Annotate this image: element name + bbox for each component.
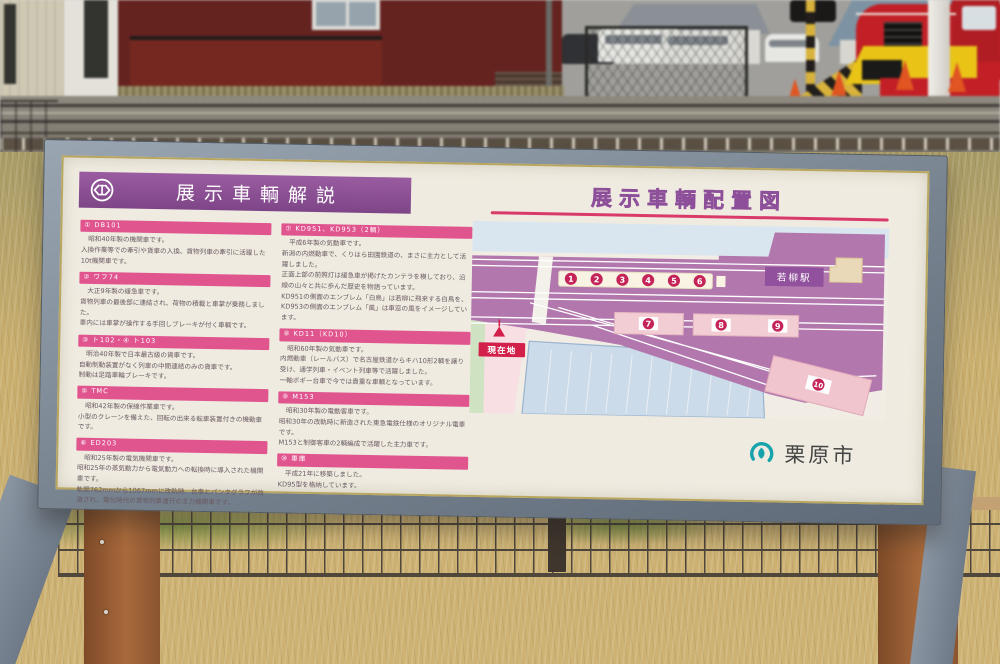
traffic-cone [948,62,966,92]
svg-text:7: 7 [645,319,651,329]
traffic-cone [831,70,846,96]
vehicle-section: ① DB101昭和40年製の機関車です。入換作業等での牽引や貨車の入換、貨物列車… [80,220,272,270]
vehicle-section-body: 平成6年製の気動車です。新潟の内燃動車で、くりはら田園鉄道の、まさに主力として活… [280,236,473,327]
building-window [4,4,16,84]
warehouse-window [312,0,380,30]
vehicle-section-line: KD951の側面のエンブレム「白鳥」は若柳に飛来する白鳥を、KD953の側面のエ… [281,291,471,326]
vehicle-section-line: M153と制御客車の2輌編成で活躍した主力車です。 [278,438,467,452]
map-display-train-strip [559,271,713,289]
vehicle-section-body: 平成21年に移築しました。KD95型を格納しています。 [277,466,468,493]
crossing-signal-pole [806,0,815,96]
vehicle-section-line: 入換作業等での牽引や貨車の入換、貨物列車の牽引に活躍した10t機関車です。 [81,245,270,270]
left-column: ① DB101昭和40年製の機関車です。入換作業等での牽引や貨車の入換、貨物列車… [75,220,271,515]
information-sign-board: 展示車輌解説 ① DB101昭和40年製の機関車です。入換作業等での牽引や貨車の… [37,139,948,526]
vehicle-section-body: 大正9年製の緩急車です。貨物列車の最後部に連結され、荷物の積載と車掌が乗務しまし… [79,284,271,332]
vehicle-section-body: 昭和40年製の機関車です。入換作業等での牽引や貨車の入換、貨物列車の牽引に活躍し… [80,232,272,270]
vehicle-descriptions: ① DB101昭和40年製の機関車です。入換作業等での牽引や貨車の入換、貨物列車… [75,220,472,519]
sign-panel: 展示車輌解説 ① DB101昭和40年製の機関車です。入換作業等での牽引や貨車の… [56,155,930,505]
right-column: ⑦ KD951、KD953（2輌）平成6年製の気動車です。新潟の内燃動車で、くり… [276,223,472,518]
vehicle-section: ③ ト102・④ ト103明治40年製で日本最古級の貨車です。自動制動装置がなく… [78,334,270,384]
chain-link-gate [585,26,748,96]
vehicle-section-line: 一軸ボギー台車で今では貴重な車輌となっています。 [280,375,469,389]
svg-text:8: 8 [718,320,724,330]
layout-map-svg: 1 2 3 4 5 6 若柳駅 7 [465,221,893,421]
vehicle-section-body: 昭和60年製の気動車です。内燃動車（レールバス）で名古屋鉄道からキハ10形2輌を… [279,341,471,389]
svg-text:2: 2 [594,274,600,284]
vehicle-section-body: 昭和25年製の電気機関車です。昭和25年の蒸気動力から電気動力への転換時に導入さ… [75,450,267,509]
vehicle-section: ⑨ M153昭和30年製の電動客車です。昭和30年の改軌時に新造された東急電鉄仕… [277,391,469,452]
svg-text:9: 9 [775,321,781,331]
white-pole [928,0,950,104]
vehicle-section-body: 昭和30年製の電動客車です。昭和30年の改軌時に新造された東急電鉄仕様のオリジナ… [277,404,469,452]
vehicle-section-line: 軌間762mmから1067mmに改軌時、台車とパンタグラフが改造され、電化時代の… [76,484,265,509]
locomotive-cab-window [962,6,996,30]
vehicle-section: ⑦ KD951、KD953（2輌）平成6年製の気動車です。新潟の内燃動車で、くり… [280,223,473,326]
wooden-post-left [84,500,160,664]
left-panel-title: 展示車輌解説 [115,177,411,209]
map-green-strip [469,320,485,413]
kurihara-city-signature: 栗原市 [746,438,857,470]
vehicle-section-line: 車内には車掌が操作する手回しブレーキが付く車輌です。 [80,318,269,332]
vehicle-section: ⑧ KD11（KD10）昭和60年製の気動車です。内燃動車（レールバス）で名古屋… [279,329,471,390]
svg-text:4: 4 [645,275,651,285]
vehicle-section-line: 正面上部の前照灯は緩急車が掲げたカンテラを模しており、沿線の山々と共に歩んだ歴史… [281,270,470,295]
vehicle-section-line: 内燃動車（レールバス）で名古屋鉄道からキハ10形2輌を譲り受け、通学列車・イベン… [280,354,469,379]
photo-of-exhibit-sign: 展示車輌解説 ① DB101昭和40年製の機関車です。入換作業等での牽引や貨車の… [0,0,1000,664]
vehicle-section-body: 昭和42年製の保線作業車です。小型のクレーンを備えた、回転の出来る転車装置付きの… [77,398,269,436]
map-station-label: 若柳駅 [777,272,812,285]
vehicle-section: ⑥ ED203昭和25年製の電気機関車です。昭和25年の蒸気動力から電気動力への… [75,438,267,509]
city-name: 栗原市 [784,439,857,470]
fence-post [548,512,566,572]
building-window [84,0,108,78]
svg-text:6: 6 [697,276,703,286]
svg-text:5: 5 [671,276,677,286]
utility-pole [546,0,552,96]
vehicle-section-line: 小型のクレーンを備えた、回転の出来る転車装置付きの機動車です。 [78,411,267,436]
kuriden-railway-emblem-icon [89,177,115,203]
svg-text:1: 1 [568,274,574,284]
kurihara-city-logo-icon [746,438,777,469]
vehicle-section: ② ワフ74大正9年製の緩急車です。貨物列車の最後部に連結され、荷物の積載と車掌… [79,272,271,333]
vehicle-layout-map: 1 2 3 4 5 6 若柳駅 7 [465,221,893,421]
svg-text:3: 3 [620,275,626,285]
current-location-label: 現在地 [487,344,516,357]
vehicle-section: ⑩ 車庫平成21年に移築しました。KD95型を格納しています。 [277,454,469,493]
vehicle-section-body: 明治40年製で日本最古級の貨車です。自動制動装置がなく列車の中間連結のみの貨車で… [78,347,270,385]
left-panel-header: 展示車輌解説 [79,172,412,214]
vehicle-section-line: 制動は足踏車輪ブレーキです。 [79,370,268,384]
traffic-cone [896,60,914,90]
vehicle-section-line: KD95型を格納しています。 [278,479,467,493]
vehicle-section: ⑤ TMC昭和42年製の保線作業車です。小型のクレーンを備えた、回転の出来る転車… [77,386,269,436]
